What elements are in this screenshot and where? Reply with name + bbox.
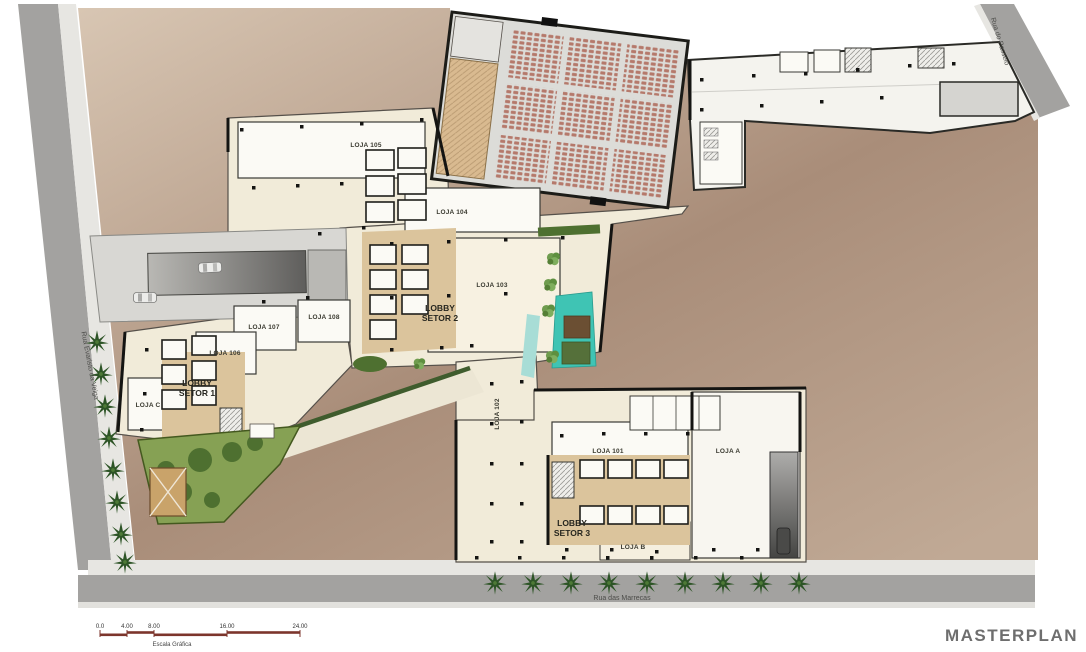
backstage bbox=[451, 16, 504, 62]
stairs-setor3 bbox=[552, 462, 574, 498]
street-bottom-edge bbox=[78, 602, 1035, 608]
label-lobby-setor-2: LOBBY SETOR 2 bbox=[422, 303, 458, 323]
room-row-top bbox=[630, 396, 720, 430]
column-dot bbox=[760, 104, 764, 108]
wing-room bbox=[814, 50, 840, 72]
column-dot bbox=[561, 236, 565, 240]
column-dot bbox=[740, 556, 744, 560]
column-dot bbox=[520, 502, 524, 506]
label-lobby-setor-1: LOBBY SETOR 1 bbox=[179, 378, 215, 398]
column-dot bbox=[610, 548, 614, 552]
column-dot bbox=[655, 550, 659, 554]
column-dot bbox=[856, 68, 860, 72]
label-loja-103: LOJA 103 bbox=[476, 282, 508, 289]
column-dot bbox=[240, 128, 244, 132]
label-loja-b: LOJA B bbox=[621, 544, 646, 551]
label-loja-102: LOJA 102 bbox=[494, 398, 501, 430]
car-icon bbox=[134, 293, 157, 303]
column-dot bbox=[296, 184, 300, 188]
scale-tick-2: 8.00 bbox=[148, 624, 160, 630]
pool-planter bbox=[562, 342, 590, 364]
label-loja-107: LOJA 107 bbox=[248, 324, 280, 331]
label-loja-c: LOJA C bbox=[136, 402, 161, 409]
column-dot bbox=[447, 294, 451, 298]
column-dot bbox=[520, 462, 524, 466]
column-dot bbox=[908, 64, 912, 68]
column-dot bbox=[820, 100, 824, 104]
scale-tick-3: 16.00 bbox=[219, 624, 235, 630]
column-dot bbox=[447, 240, 451, 244]
column-dot bbox=[362, 226, 366, 230]
scale-tick-1: 4.00 bbox=[121, 624, 133, 630]
column-dot bbox=[504, 292, 508, 296]
column-dot bbox=[504, 238, 508, 242]
column-dot bbox=[606, 556, 610, 560]
column-dot bbox=[520, 540, 524, 544]
column-dot bbox=[390, 296, 394, 300]
column-dot bbox=[880, 96, 884, 100]
column-dot bbox=[520, 380, 524, 384]
column-dot bbox=[470, 344, 474, 348]
street-bottom bbox=[78, 575, 1035, 602]
room-loja-105 bbox=[238, 122, 425, 178]
column-dot bbox=[694, 556, 698, 560]
wing-service bbox=[940, 82, 1018, 116]
label-street-bottom: Rua das Marrecas bbox=[593, 595, 651, 602]
driveway-ramp bbox=[148, 251, 307, 296]
car-dark-icon bbox=[777, 528, 790, 554]
column-dot bbox=[490, 422, 494, 426]
seating-blocks bbox=[494, 29, 679, 198]
column-dot bbox=[602, 432, 606, 436]
scale-tick-0: 0.0 bbox=[96, 624, 105, 630]
column-dot bbox=[318, 232, 322, 236]
label-loja-108: LOJA 108 bbox=[308, 314, 340, 321]
column-dot bbox=[306, 296, 310, 300]
column-dot bbox=[560, 434, 564, 438]
column-dot bbox=[700, 108, 704, 112]
column-dot bbox=[490, 502, 494, 506]
column-dot bbox=[644, 432, 648, 436]
car-icon bbox=[198, 262, 221, 273]
column-dot bbox=[145, 348, 149, 352]
garden-kiosk bbox=[250, 424, 274, 438]
column-dot bbox=[700, 78, 704, 82]
theater bbox=[431, 6, 689, 214]
column-dot bbox=[520, 420, 524, 424]
svg-text:LOBBY: LOBBY bbox=[182, 378, 212, 388]
column-dot bbox=[490, 540, 494, 544]
label-loja-105: LOJA 105 bbox=[350, 142, 382, 149]
label-lobby-setor-3: LOBBY SETOR 3 bbox=[554, 518, 590, 538]
column-dot bbox=[390, 242, 394, 246]
masterplan-drawing: LOJA 105 LOJA 104 LOJA 103 LOJA 102 LOJA… bbox=[0, 0, 1086, 652]
label-loja-104: LOJA 104 bbox=[436, 209, 468, 216]
column-dot bbox=[252, 186, 256, 190]
column-dot bbox=[140, 428, 144, 432]
svg-text:LOBBY: LOBBY bbox=[557, 518, 587, 528]
column-dot bbox=[340, 182, 344, 186]
scale-caption: Escala Gráfica bbox=[152, 642, 192, 648]
column-dot bbox=[490, 462, 494, 466]
column-dot bbox=[262, 300, 266, 304]
wing-stall bbox=[704, 152, 718, 160]
page-title: MASTERPLAN bbox=[945, 626, 1078, 645]
scale-tick-4: 24.00 bbox=[292, 624, 308, 630]
column-dot bbox=[300, 125, 304, 129]
label-loja-a: LOJA A bbox=[716, 448, 741, 455]
svg-text:SETOR 3: SETOR 3 bbox=[554, 528, 590, 538]
column-dot bbox=[518, 556, 522, 560]
wing-stall bbox=[704, 128, 718, 136]
column-dot bbox=[360, 122, 364, 126]
wing-room bbox=[780, 52, 808, 72]
column-dot bbox=[143, 392, 147, 396]
planter bbox=[353, 356, 387, 372]
wing-stairs bbox=[918, 48, 944, 68]
column-dot bbox=[565, 548, 569, 552]
wing-stall bbox=[704, 140, 718, 148]
svg-text:SETOR 1: SETOR 1 bbox=[179, 388, 215, 398]
room-loja-108 bbox=[298, 300, 350, 342]
column-dot bbox=[756, 548, 760, 552]
column-dot bbox=[475, 556, 479, 560]
pool-planter bbox=[564, 316, 590, 338]
column-dot bbox=[752, 74, 756, 78]
column-dot bbox=[390, 348, 394, 352]
column-dot bbox=[952, 62, 956, 66]
svg-text:SETOR 2: SETOR 2 bbox=[422, 313, 458, 323]
column-dot bbox=[712, 548, 716, 552]
column-dot bbox=[686, 432, 690, 436]
column-dot bbox=[420, 118, 424, 122]
service-block bbox=[308, 250, 346, 308]
column-dot bbox=[650, 556, 654, 560]
column-dot bbox=[440, 346, 444, 350]
column-dot bbox=[562, 556, 566, 560]
column-dot bbox=[490, 382, 494, 386]
label-loja-106: LOJA 106 bbox=[209, 350, 241, 357]
svg-text:LOBBY: LOBBY bbox=[425, 303, 455, 313]
label-loja-101: LOJA 101 bbox=[592, 448, 624, 455]
column-dot bbox=[804, 72, 808, 76]
